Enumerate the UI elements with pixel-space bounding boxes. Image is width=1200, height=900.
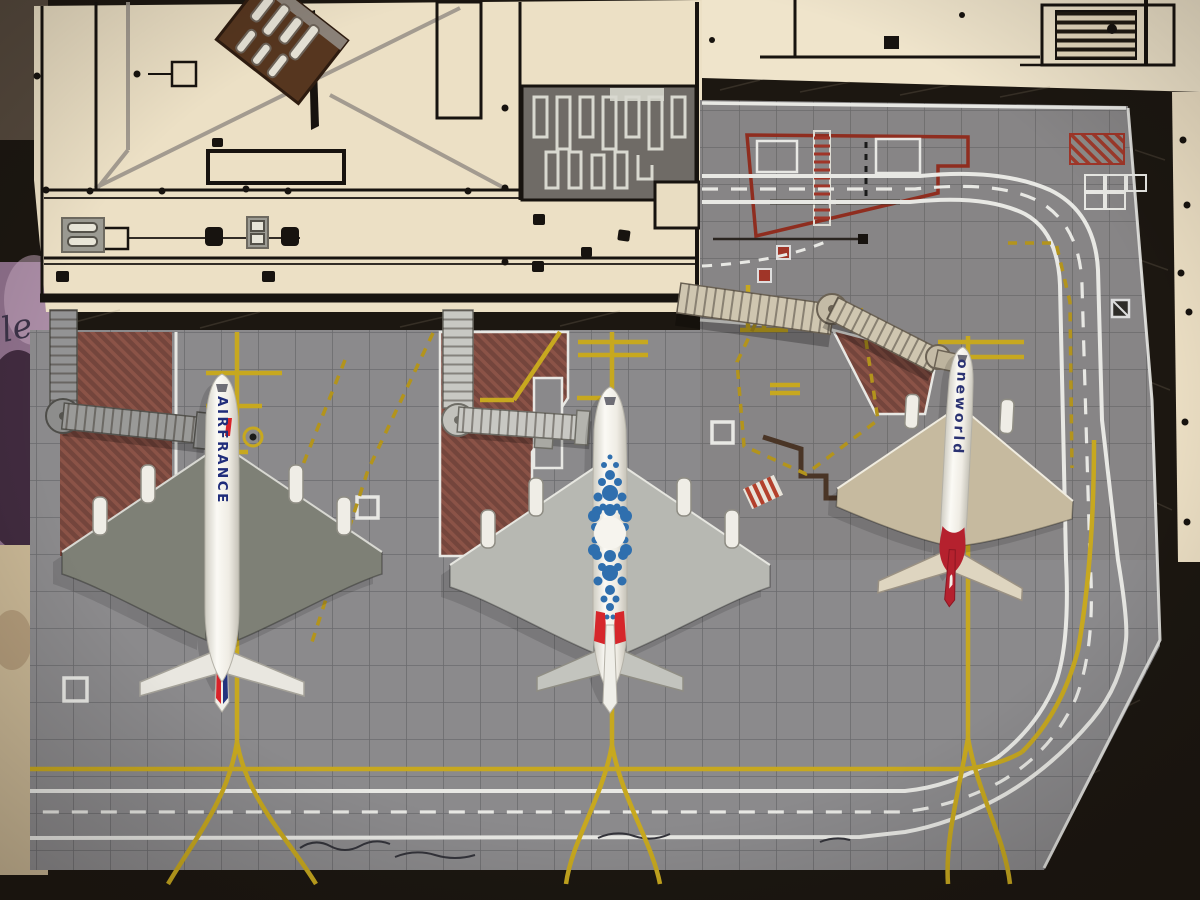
photo-vignette	[0, 0, 1200, 900]
scene-svg: le	[0, 0, 1200, 900]
diorama-photo: le	[0, 0, 1200, 900]
